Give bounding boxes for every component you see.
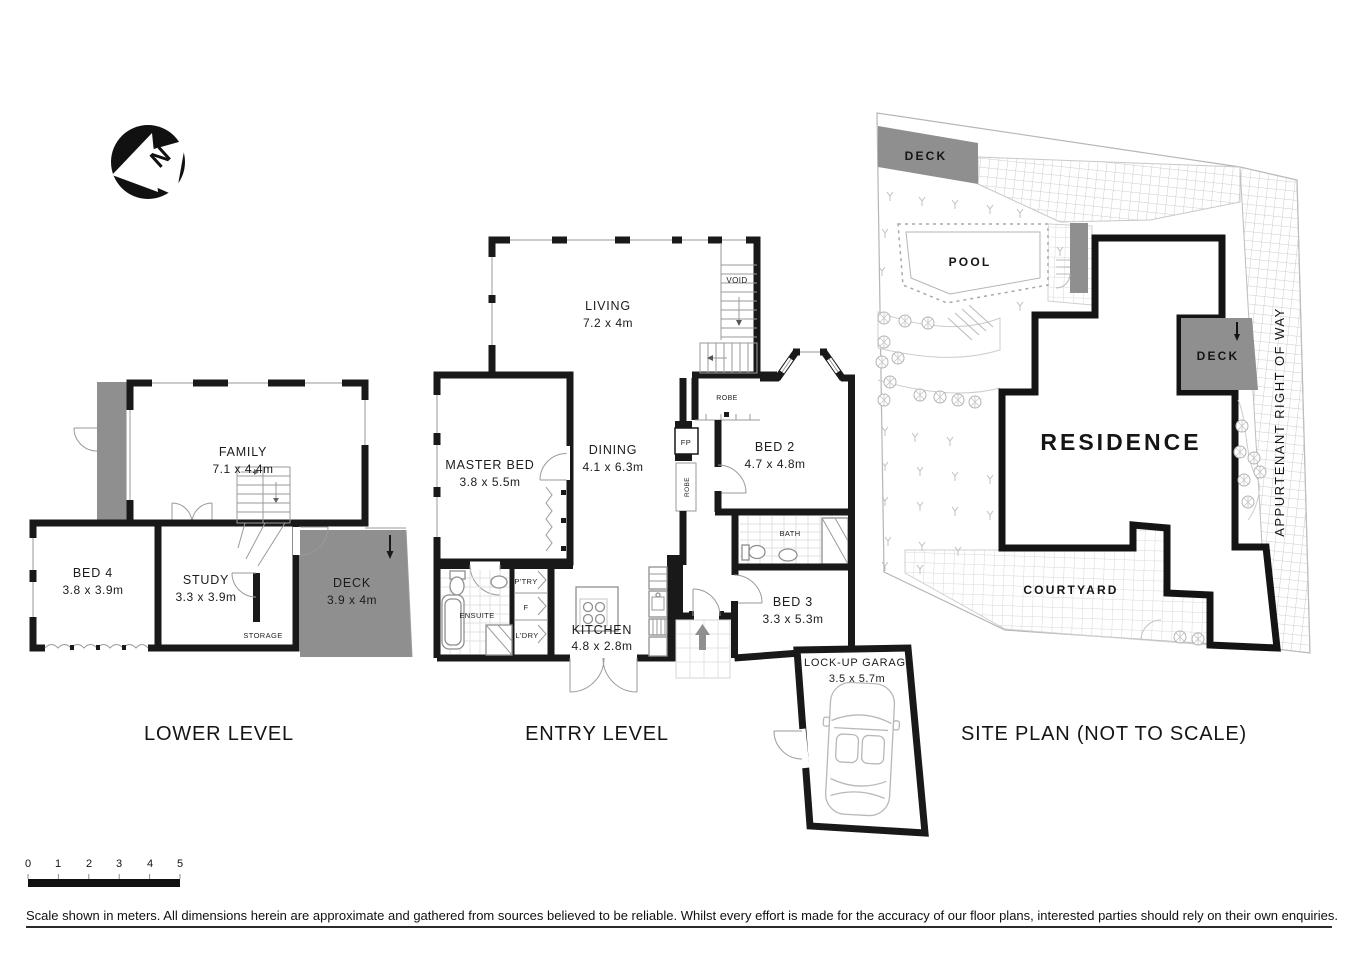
- scale-tick-5: 5: [173, 858, 187, 870]
- scale-bar-ruler: [20, 872, 220, 892]
- entry-level-title: ENTRY LEVEL: [477, 723, 717, 746]
- bath-room: [734, 512, 852, 575]
- car-icon: [819, 681, 902, 817]
- site-deck-right-label: DECK: [1197, 349, 1240, 363]
- kitchen-dims: 4.8 x 2.8m: [571, 639, 632, 653]
- laundry-label: L'DRY: [515, 631, 538, 640]
- site-plan-title: SITE PLAN (NOT TO SCALE): [954, 723, 1254, 746]
- living-label: LIVING: [585, 299, 631, 313]
- robe-side-label: ROBE: [684, 477, 691, 497]
- ensuite-label: ENSUITE: [459, 611, 494, 620]
- bed2-dims: 4.7 x 4.8m: [744, 457, 805, 471]
- master-dims: 3.8 x 5.5m: [459, 475, 520, 489]
- master-label: MASTER BED: [445, 458, 534, 472]
- pool-label: POOL: [949, 255, 992, 269]
- bath-label: BATH: [779, 529, 800, 538]
- scale-tick-2: 2: [82, 858, 96, 870]
- scale-bar: 0 1 2 3 4 5: [20, 858, 220, 898]
- bed4-label: BED 4: [73, 566, 113, 580]
- fridge-label: F: [524, 603, 529, 612]
- lower-deck-label: DECK: [333, 576, 371, 590]
- courtyard-label: COURTYARD: [1023, 583, 1118, 597]
- bed2-label: BED 2: [755, 440, 795, 454]
- north-arrow-icon: N: [95, 110, 205, 220]
- scale-tick-3: 3: [112, 858, 126, 870]
- floorplan-page: N: [0, 0, 1358, 960]
- residence-label: RESIDENCE: [1040, 429, 1201, 455]
- kitchen-label: KITCHEN: [572, 623, 632, 637]
- storage-label: STORAGE: [243, 631, 282, 640]
- lower-level-title: LOWER LEVEL: [99, 723, 339, 746]
- family-dims: 7.1 x 4.4m: [212, 462, 273, 476]
- pantry-label: P'TRY: [514, 577, 537, 586]
- study-label: STUDY: [183, 573, 229, 587]
- site-plan: POOL DECK DECK RESIDENCE COUR: [860, 100, 1330, 680]
- kitchen-double-doors: [570, 658, 637, 692]
- scale-tick-0: 0: [21, 858, 35, 870]
- dining-dims: 4.1 x 6.3m: [582, 460, 643, 474]
- lower-deck-dims: 3.9 x 4m: [327, 593, 377, 607]
- scale-tick-1: 1: [51, 858, 65, 870]
- master-windows: [434, 395, 441, 537]
- scale-tick-4: 4: [143, 858, 157, 870]
- robe-top-label: ROBE: [716, 395, 737, 402]
- entry-porch: [676, 620, 730, 678]
- dining-label: DINING: [589, 443, 638, 457]
- right-of-way-label: APPURTENANT RIGHT OF WAY: [1272, 307, 1287, 537]
- void-label: VOID: [726, 276, 747, 285]
- disclaimer-text: Scale shown in meters. All dimensions he…: [26, 908, 1332, 928]
- living-dims: 7.2 x 4m: [583, 316, 633, 330]
- bed3-label: BED 3: [773, 595, 813, 609]
- lower-level-plan: FAMILY 7.1 x 4.4m BED 4 3.8 x 3.9m STUDY…: [0, 370, 430, 670]
- family-label: FAMILY: [219, 445, 267, 459]
- site-deck-top-label: DECK: [905, 149, 948, 163]
- site-gray-strip: [1070, 223, 1088, 293]
- study-dims: 3.3 x 3.9m: [175, 590, 236, 604]
- fp-label: FP: [681, 438, 691, 447]
- bed4-dims: 3.8 x 3.9m: [62, 583, 123, 597]
- bed3-dims: 3.3 x 5.3m: [762, 612, 823, 626]
